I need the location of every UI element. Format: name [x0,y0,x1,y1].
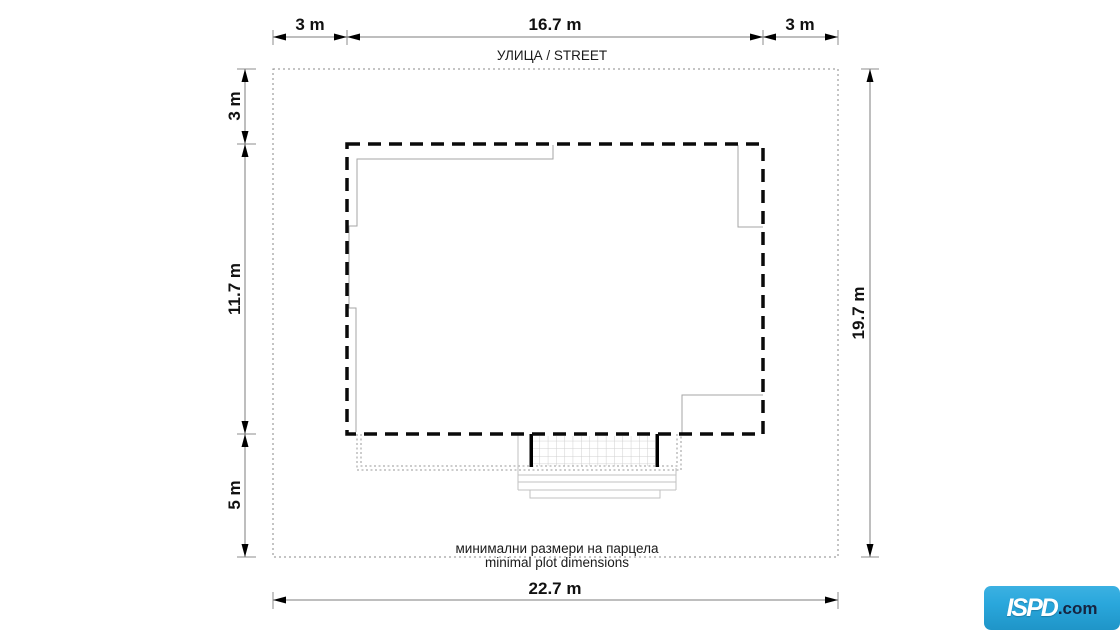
house-footprint [349,145,763,433]
caption-bg: минимални размери на парцела [456,541,659,556]
dim-bottom: 22.7 m [529,579,582,598]
dimension-bottom: 22.7 m [273,579,838,609]
dim-left-top: 3 m [225,91,244,120]
dimension-top: 3 m 16.7 m 3 m [273,15,838,45]
dim-top-center: 16.7 m [529,15,582,34]
street-label: УЛИЦА / STREET [497,48,607,63]
logo-brand-text: ISPD [1006,596,1056,621]
caption-en: minimal plot dimensions [485,555,629,570]
dim-right: 19.7 m [849,287,868,340]
plot-boundary [273,69,838,557]
terrace-jamb-right [656,434,660,467]
terrace [357,434,681,498]
terrace-jamb-left [530,434,534,467]
logo-suffix-text: .com [1058,600,1098,617]
building-envelope [347,144,763,434]
dim-left-middle: 11.7 m [225,263,244,315]
dim-top-left: 3 m [295,15,324,34]
dim-top-right: 3 m [785,15,814,34]
dimension-right: 19.7 m [849,69,879,557]
caption: минимални размери на парцела minimal plo… [456,541,659,570]
dim-left-bottom: 5 m [225,480,244,509]
ispd-logo[interactable]: ISPD.com [984,586,1120,630]
terrace-grid [533,436,655,466]
site-plan-diagram: 3 m 16.7 m 3 m УЛИЦА / STREET 3 m 11.7 m… [0,0,1120,632]
dimension-left: 3 m 11.7 m 5 m [225,69,256,557]
